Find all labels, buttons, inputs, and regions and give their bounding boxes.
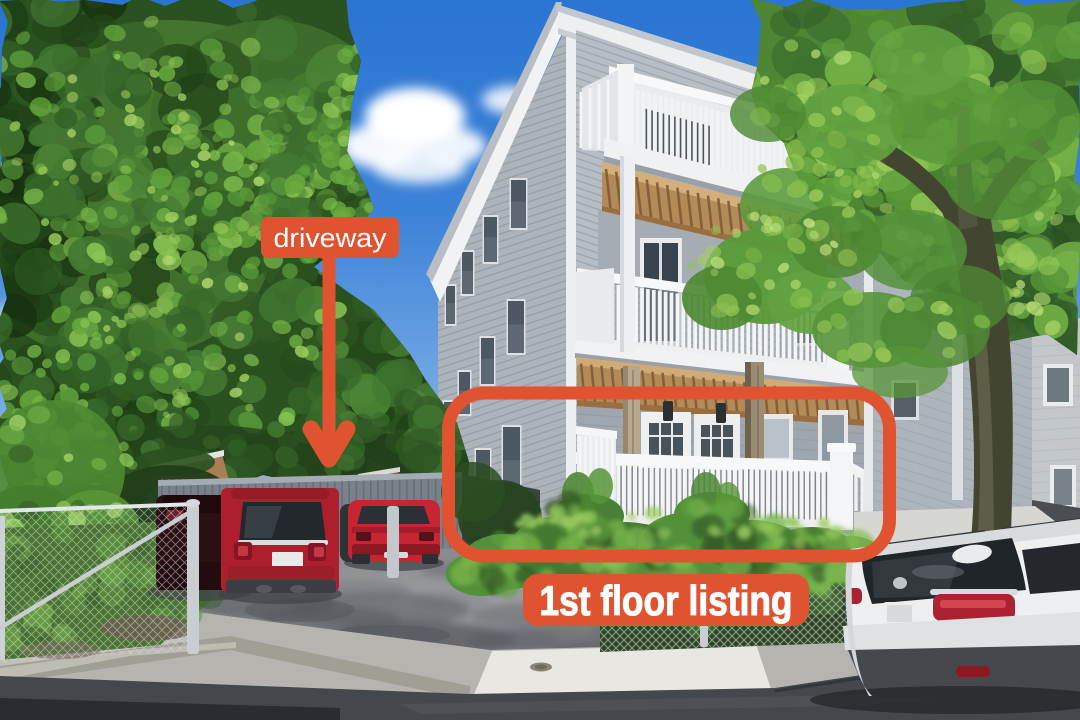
svg-text:1st floor listing: 1st floor listing — [540, 577, 793, 624]
svg-text:driveway: driveway — [274, 223, 388, 253]
